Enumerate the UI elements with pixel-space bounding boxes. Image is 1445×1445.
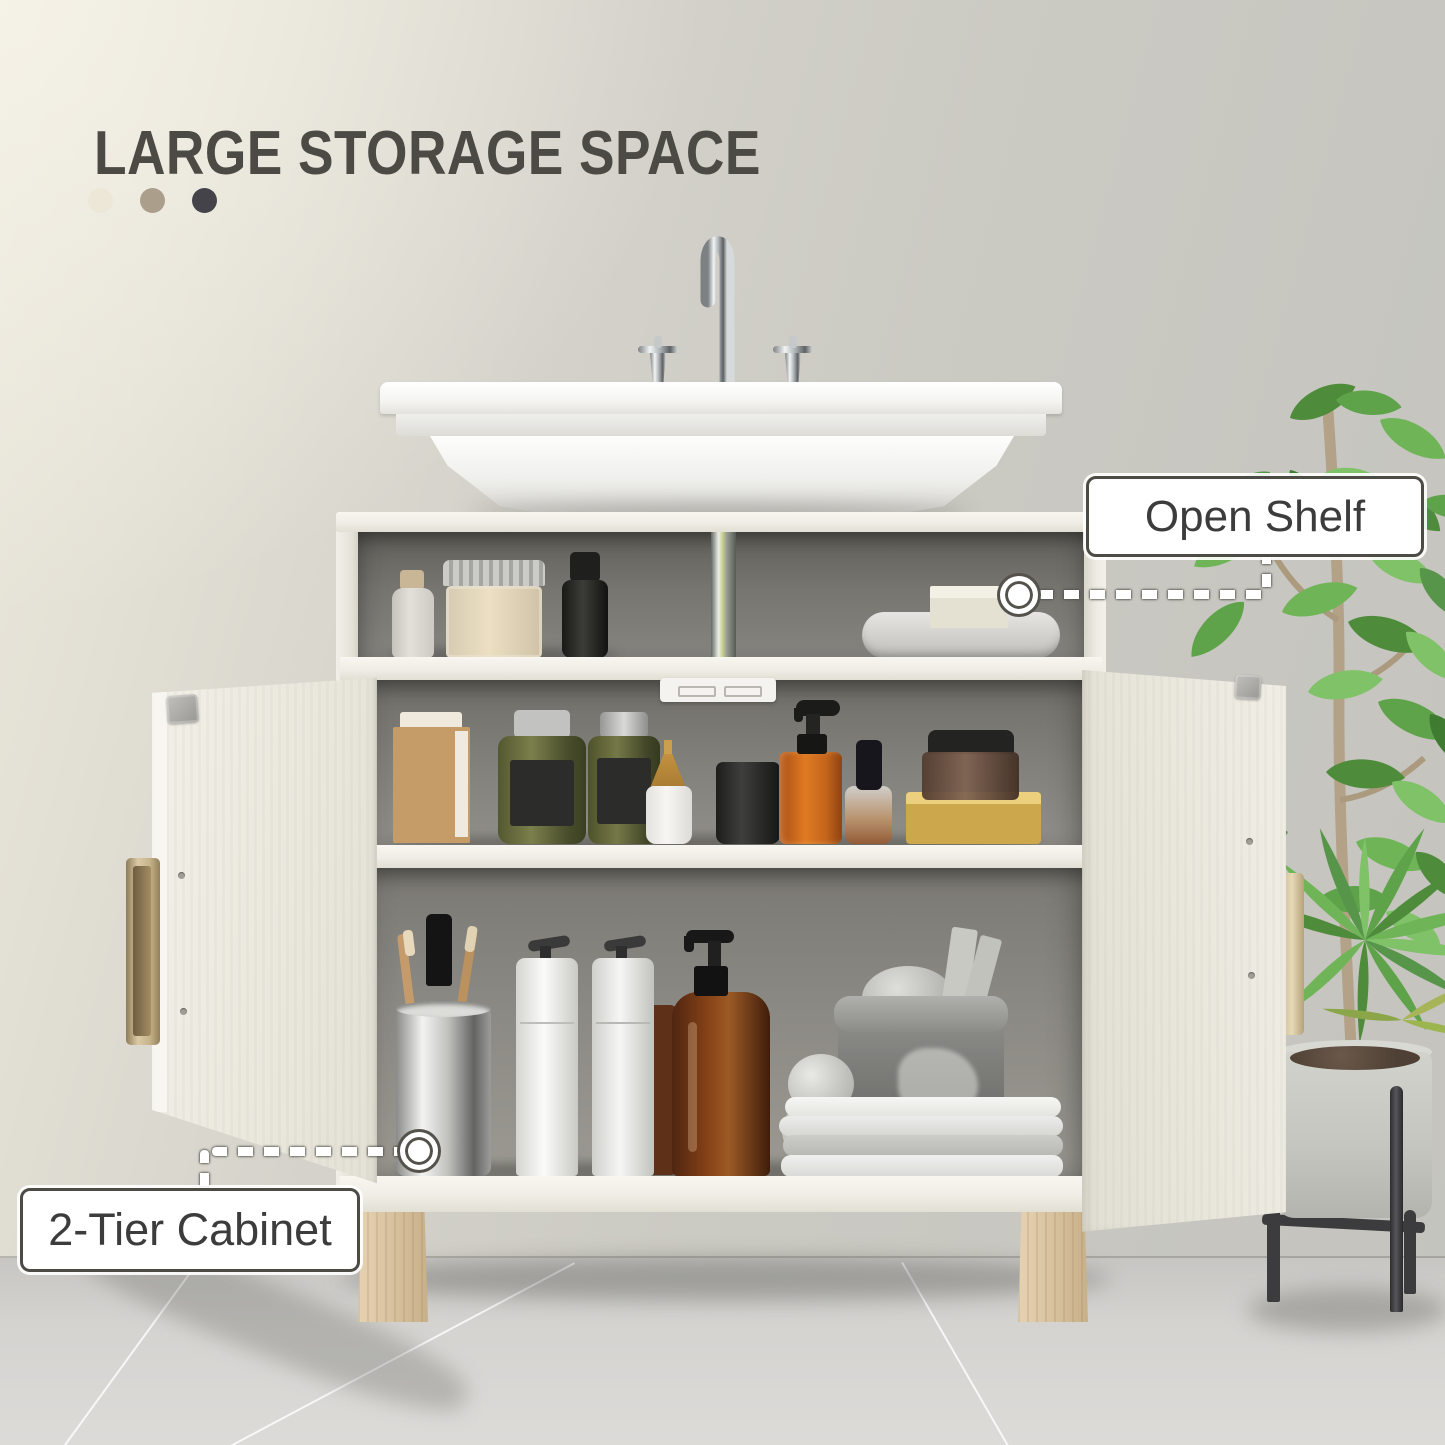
bracket-slot [724, 686, 762, 697]
pump-stem [806, 714, 820, 736]
smoky-glass-jar [922, 752, 1019, 800]
green-bottle-cap [600, 712, 648, 738]
sink-rim [380, 382, 1062, 414]
open-shelf-connector-line [1038, 590, 1268, 599]
door-screw [180, 1008, 187, 1015]
page-title: LARGE STORAGE SPACE [94, 118, 761, 189]
smoky-jar-lid [928, 730, 1014, 754]
storage-jar [446, 586, 542, 658]
wood-grain [358, 1210, 428, 1322]
towel-stack [779, 1097, 1063, 1177]
pump-spout-tip [794, 708, 803, 722]
middle-shelf-board [340, 845, 1102, 868]
pump-collar [797, 734, 827, 754]
white-bottle [646, 786, 692, 844]
cabinet-leg-right [1018, 1210, 1088, 1322]
door-screw [1248, 972, 1255, 979]
lotion-bottle [392, 588, 434, 658]
planter-soil [1290, 1046, 1420, 1070]
cabinet-leg-left [358, 1210, 428, 1322]
color-swatch-tan [140, 188, 165, 213]
planter-pot [1278, 1052, 1432, 1218]
dropper-bottle [845, 786, 892, 844]
folded-towel-layer [783, 1135, 1063, 1156]
basket-cuff [834, 996, 1008, 1032]
two-tier-cabinet-marker [400, 1132, 438, 1170]
two-tier-cabinet-callout: 2-Tier Cabinet [20, 1188, 360, 1272]
wood-grain [150, 670, 382, 1190]
wood-grain [1080, 662, 1288, 1234]
cabinet-top-board [336, 512, 1106, 532]
door-screw [178, 872, 185, 879]
two-tier-connector-line [212, 1147, 404, 1156]
kraft-box-label [455, 731, 468, 837]
kraft-box [393, 727, 470, 843]
sink-rim-step [396, 414, 1046, 436]
bracket-slot [678, 686, 716, 697]
door-hinge-plate [166, 694, 199, 724]
drain-mount-bracket [660, 678, 776, 702]
amber-pump-bottle [672, 992, 770, 1176]
black-tumbler [716, 762, 780, 844]
bottle-seam [596, 1022, 650, 1024]
faucet-spout [708, 244, 727, 390]
faucet-handle-right [773, 336, 813, 388]
open-shelf-callout: Open Shelf [1086, 476, 1424, 557]
door-hinge-plate [1234, 674, 1261, 699]
open-shelf-marker [1000, 576, 1038, 614]
color-options [88, 188, 217, 213]
pump-stem [708, 941, 721, 969]
cabinet-door-right [1080, 662, 1288, 1234]
white-pump-bottle [516, 958, 578, 1176]
oil-bottle-cap [570, 552, 600, 582]
cabinet-floor-shadow [340, 1258, 1110, 1300]
lotion-bottle-cap [400, 570, 424, 590]
green-glass-bottle [498, 736, 586, 844]
sink-basin [430, 436, 1014, 514]
product-showcase-scene: LARGE STORAGE SPACE [0, 0, 1445, 1445]
drain-pipe [711, 531, 736, 659]
white-pump-bottle [592, 958, 654, 1176]
green-bottle-cap [514, 710, 570, 738]
handle-recess [133, 866, 151, 1036]
bottle-seam [520, 1022, 574, 1024]
plant-stand-leg [1267, 1208, 1280, 1302]
open-shelf-connector-line [1262, 551, 1271, 597]
cabinet-door-left [150, 670, 382, 1190]
bottle-label [597, 758, 651, 824]
cup-rim [396, 1001, 491, 1017]
color-swatch-charcoal [192, 188, 217, 213]
storage-jar-lid [443, 560, 545, 586]
glass-highlight [688, 1022, 697, 1152]
folded-towel-layer [785, 1097, 1061, 1117]
dropper-cap [856, 740, 882, 790]
cabinet-bottom-board [336, 1176, 1106, 1212]
pump-collar [694, 966, 728, 996]
plant-stand-leg [1404, 1210, 1416, 1294]
door-handle-left [126, 858, 160, 1045]
black-dropper-top [426, 914, 452, 986]
oil-bottle [562, 580, 608, 658]
white-bottle-tip [664, 740, 672, 756]
pump-spout-tip [684, 936, 694, 952]
folded-towel-layer [779, 1116, 1063, 1136]
two-tier-connector-line [200, 1150, 209, 1190]
soap-box [930, 598, 1008, 628]
faucet-handle-left [638, 336, 678, 388]
wood-grain [1018, 1210, 1088, 1322]
amber-soap-dispenser [779, 752, 842, 844]
plant-stand-leg [1390, 1086, 1403, 1312]
faucet [600, 200, 900, 400]
open-shelf-board [340, 657, 1102, 680]
color-swatch-cream [88, 188, 113, 213]
door-screw [1246, 838, 1253, 845]
folded-towel-layer [781, 1155, 1063, 1177]
bottle-label [510, 760, 574, 826]
